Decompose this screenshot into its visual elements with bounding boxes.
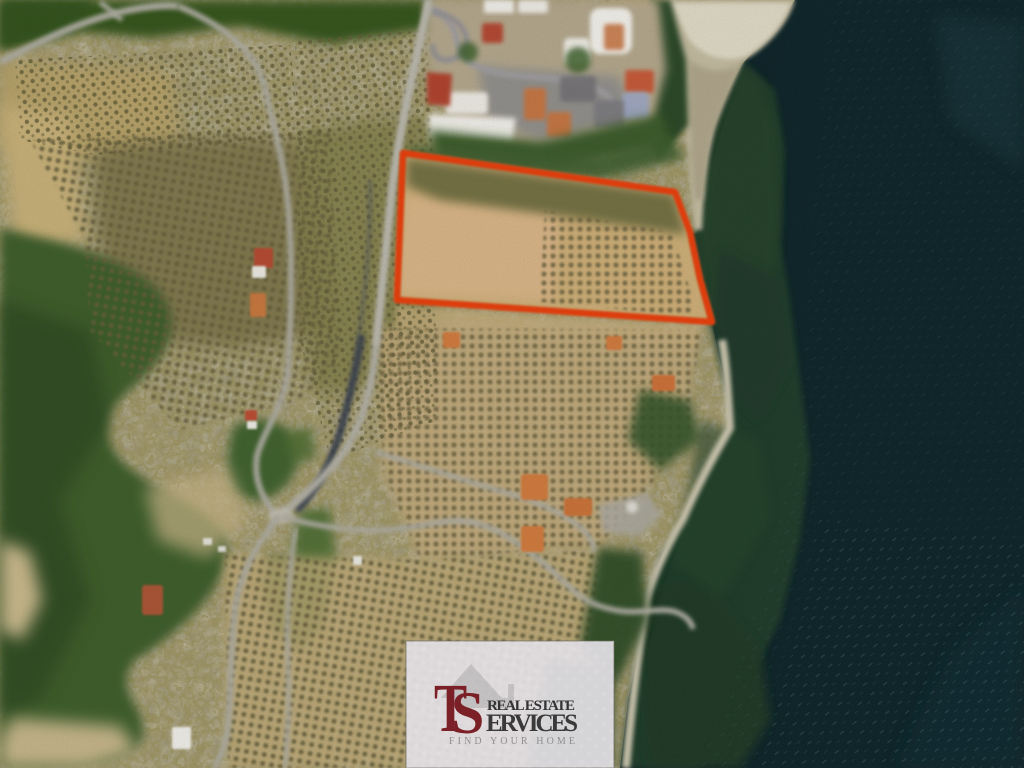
svg-text:ERVICES: ERVICES: [486, 710, 578, 737]
svg-text:FIND YOUR HOME: FIND YOUR HOME: [449, 736, 575, 747]
